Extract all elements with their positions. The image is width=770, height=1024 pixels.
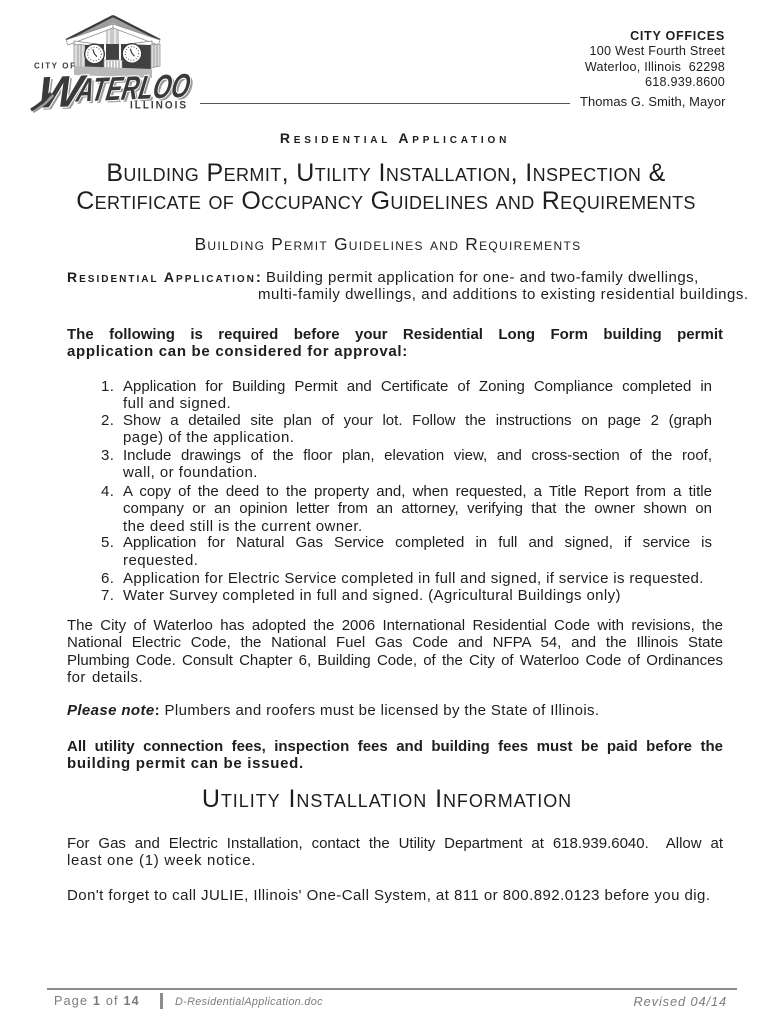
svg-text:ILLINOIS: ILLINOIS [130, 100, 188, 112]
